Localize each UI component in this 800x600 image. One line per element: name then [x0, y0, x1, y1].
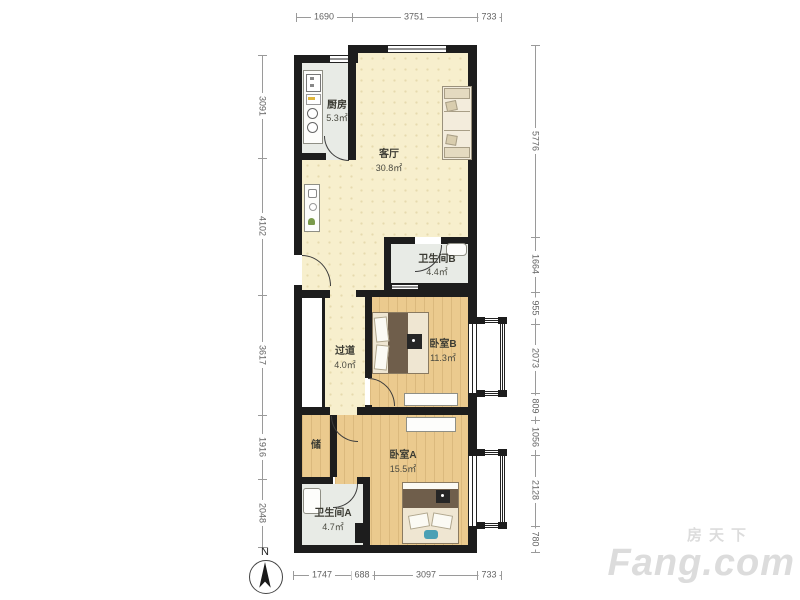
dim-bottom-1: 1747: [309, 571, 335, 580]
sofa-cushion-line: [444, 130, 470, 131]
bay-window-post: [498, 522, 507, 529]
wall: [357, 407, 468, 415]
dim-left-1: 3091: [258, 93, 267, 119]
wall: [294, 545, 477, 553]
bedroom-a-area: 15.5㎡: [390, 465, 417, 474]
sink-dot: [310, 84, 314, 87]
bedroom-b-bay-opening: [468, 324, 477, 393]
bed-pillow: [374, 344, 390, 370]
bedroom-b-label: 卧室B: [429, 340, 456, 350]
bathroom-b-area: 4.4㎡: [426, 268, 448, 277]
bedroom-a-cabinet: [406, 417, 456, 432]
dim-tick: [531, 455, 540, 456]
mirror-icon: [309, 203, 317, 211]
dim-tick: [501, 13, 502, 22]
bay-window-post: [477, 390, 485, 397]
living-room-window: [388, 45, 446, 53]
sofa-armrest: [444, 147, 470, 158]
dim-tick: [258, 479, 267, 480]
floor-plan: 厨房 5.3㎡ 客厅 30.8㎡ 卫生间B 4.4㎡ 过道 4.0㎡ 卧室B 1…: [0, 0, 800, 600]
sink-dot: [310, 77, 314, 80]
bay-window-b-top: [485, 318, 498, 323]
dim-tick: [258, 295, 267, 296]
stove-burner-icon: [307, 122, 318, 133]
dim-bottom-4: 733: [478, 571, 499, 580]
toilet-partition-wall: [355, 523, 363, 543]
dim-right-3: 955: [531, 297, 540, 318]
tv-dot: [441, 494, 444, 497]
dim-tick: [258, 158, 267, 159]
wall: [356, 290, 390, 297]
dim-right-1: 5776: [531, 128, 540, 154]
dim-tick: [531, 237, 540, 238]
wall: [446, 45, 468, 53]
dim-right-5: 809: [531, 395, 540, 416]
bay-window-b-bottom: [485, 391, 498, 396]
stove-burner-icon: [307, 108, 318, 119]
living-room-label: 客厅: [379, 150, 399, 160]
kitchen-label: 厨房: [327, 101, 347, 111]
dim-tick: [258, 55, 267, 56]
wall: [294, 55, 330, 63]
dim-left-3: 3617: [258, 342, 267, 368]
dim-bottom-3: 3097: [413, 571, 439, 580]
dim-right-2: 1664: [531, 251, 540, 277]
bay-window-a-bottom: [485, 523, 498, 528]
dim-tick: [531, 552, 540, 553]
dim-tick: [531, 45, 540, 46]
dim-tick: [531, 292, 540, 293]
dim-tick: [352, 13, 353, 22]
dim-left-4: 1916: [258, 434, 267, 460]
dim-tick: [501, 571, 502, 580]
wall: [348, 62, 356, 160]
wall: [294, 477, 333, 484]
wall: [294, 55, 302, 255]
dim-tick: [531, 393, 540, 394]
bay-window-a-glass: [500, 456, 505, 522]
hallway-area: 4.0㎡: [334, 361, 356, 370]
wall: [294, 407, 330, 415]
dim-top-3: 733: [478, 13, 499, 22]
living-room-area: 30.8㎡: [376, 164, 403, 173]
living-room-floor-mid: [348, 237, 388, 297]
dim-left-5: 2048: [258, 500, 267, 526]
wall: [363, 484, 370, 545]
wall: [302, 153, 326, 160]
tv-dot: [412, 339, 415, 342]
wall: [294, 285, 302, 553]
bay-window-post: [498, 390, 507, 397]
bedroom-b-cabinet: [404, 393, 458, 406]
wall: [356, 45, 388, 53]
bathroom-a-area: 4.7㎡: [322, 523, 344, 532]
north-label: N: [261, 546, 269, 558]
storage-label: 储: [311, 441, 321, 451]
bathroom-b-label: 卫生间B: [418, 255, 455, 265]
dim-top-2: 3751: [401, 13, 427, 22]
bay-window-b-glass: [500, 324, 505, 390]
dim-tick: [531, 526, 540, 527]
dim-tick: [296, 13, 297, 22]
dim-tick: [531, 420, 540, 421]
wall: [357, 477, 370, 484]
sofa-pillow: [445, 134, 458, 146]
bedroom-b-area: 11.3㎡: [430, 354, 456, 363]
hanger-icon: [308, 189, 317, 198]
kitchen-window: [330, 55, 348, 63]
sofa-armrest: [444, 88, 470, 99]
dim-right-4: 2073: [531, 345, 540, 371]
dim-bottom-2: 688: [351, 571, 372, 580]
bay-window-post: [498, 317, 507, 324]
dim-right-8: 780: [531, 528, 540, 549]
plant-icon: [308, 218, 315, 225]
bay-window-post: [477, 449, 485, 456]
dim-right-7: 2128: [531, 477, 540, 503]
bathroom-b-partition-window: [392, 284, 418, 290]
hallway-label: 过道: [335, 347, 355, 357]
bedroom-a-label: 卧室A: [389, 451, 416, 461]
bed-blanket: [388, 313, 408, 373]
cutting-board-mark: [308, 97, 315, 100]
wall: [365, 297, 372, 378]
bed-throw: [424, 530, 438, 539]
bay-window-post: [498, 449, 507, 456]
dim-left-2: 4102: [258, 213, 267, 239]
bathroom-a-label: 卫生间A: [314, 509, 351, 519]
kitchen-area: 5.3㎡: [326, 114, 348, 123]
dim-tick: [258, 415, 267, 416]
bed-pillow: [374, 316, 390, 342]
bay-window-a-top: [485, 450, 498, 455]
dim-tick: [374, 571, 375, 580]
fang-watermark-en: Fang.com: [600, 545, 795, 581]
dimension-line-left: [262, 55, 263, 547]
wall: [384, 237, 415, 244]
dim-top-1: 1690: [311, 13, 337, 22]
dim-right-6: 1056: [531, 424, 540, 450]
bay-window-post: [477, 522, 485, 529]
dim-tick: [531, 324, 540, 325]
bedroom-a-bay-opening: [468, 456, 477, 526]
fang-watermark: 房天下 Fang.com: [600, 524, 795, 581]
dim-tick: [293, 571, 294, 580]
wall: [322, 298, 325, 415]
wall: [294, 290, 330, 298]
bay-window-post: [477, 317, 485, 324]
